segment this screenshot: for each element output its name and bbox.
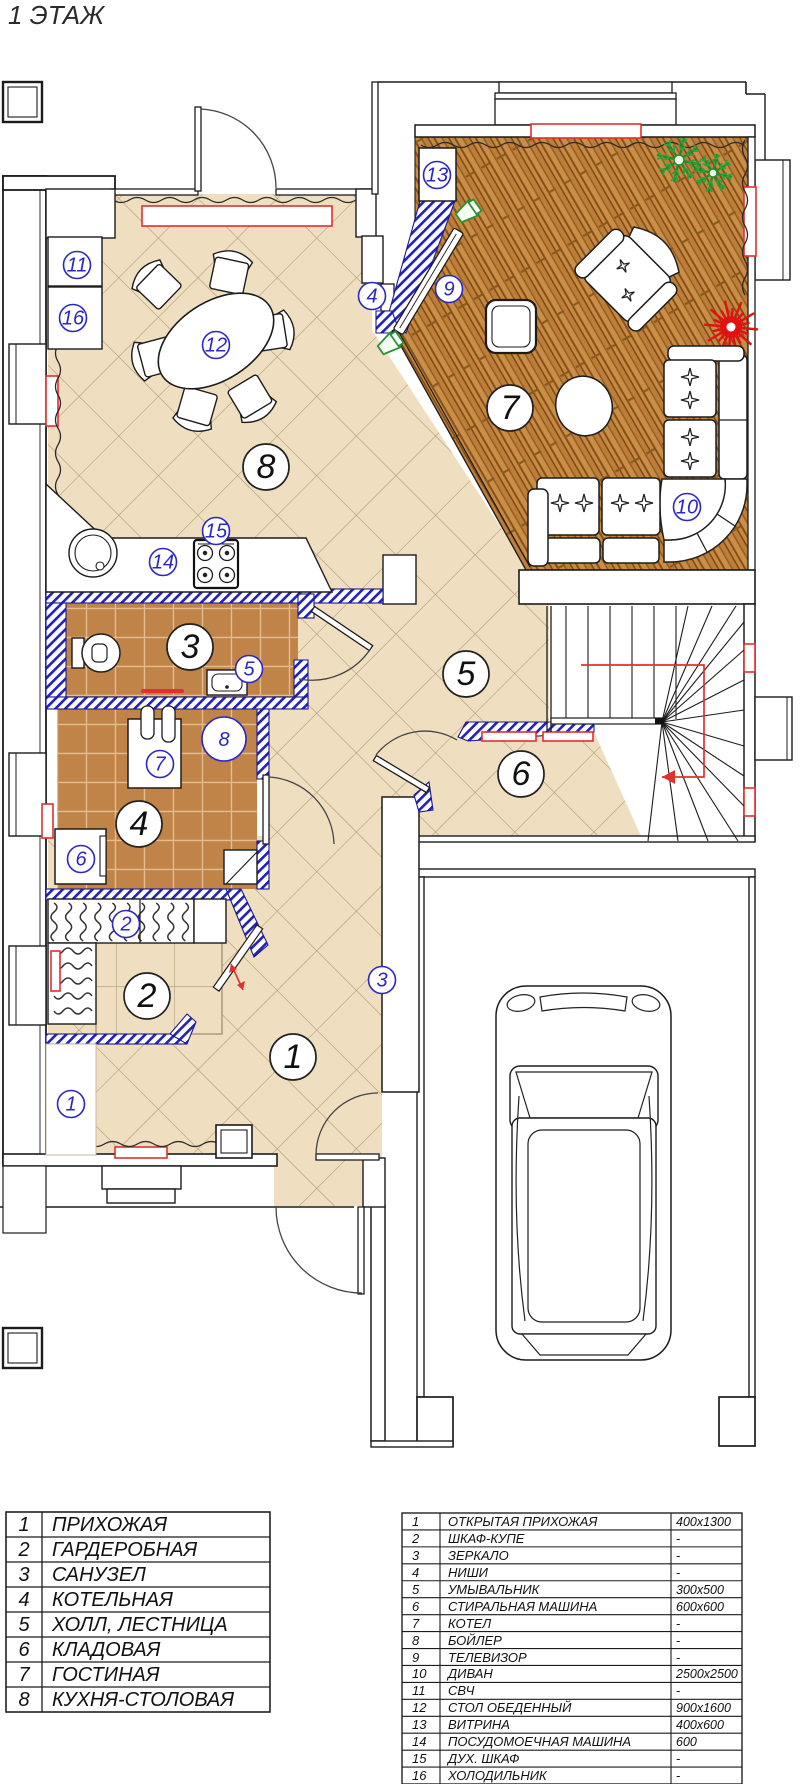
svg-text:6: 6 xyxy=(75,849,87,871)
svg-text:-: - xyxy=(676,1634,680,1648)
svg-text:5: 5 xyxy=(243,659,255,681)
svg-text:ПОСУДОМОЕЧНАЯ МАШИНА: ПОСУДОМОЕЧНАЯ МАШИНА xyxy=(448,1734,631,1749)
svg-text:ДУХ. ШКАФ: ДУХ. ШКАФ xyxy=(446,1751,519,1766)
svg-text:4: 4 xyxy=(18,1589,29,1611)
svg-text:3: 3 xyxy=(181,628,200,666)
svg-text:5: 5 xyxy=(457,655,476,693)
svg-text:ШКАФ-КУПЕ: ШКАФ-КУПЕ xyxy=(448,1531,525,1546)
svg-text:16: 16 xyxy=(412,1768,427,1783)
svg-text:-: - xyxy=(676,1566,680,1580)
svg-text:4: 4 xyxy=(130,805,149,843)
svg-text:2: 2 xyxy=(411,1531,420,1546)
svg-text:СТИРАЛЬНАЯ МАШИНА: СТИРАЛЬНАЯ МАШИНА xyxy=(448,1599,597,1614)
svg-text:-: - xyxy=(676,1617,680,1631)
svg-text:5: 5 xyxy=(412,1582,420,1597)
svg-text:1: 1 xyxy=(284,1038,303,1076)
svg-text:ЗЕРКАЛО: ЗЕРКАЛО xyxy=(448,1548,509,1563)
svg-text:ДИВАН: ДИВАН xyxy=(446,1666,493,1681)
svg-text:4: 4 xyxy=(412,1565,419,1580)
svg-text:1: 1 xyxy=(18,1514,29,1536)
svg-text:2: 2 xyxy=(17,1539,29,1561)
svg-text:9: 9 xyxy=(412,1650,419,1665)
svg-text:ОТКРЫТАЯ ПРИХОЖАЯ: ОТКРЫТАЯ ПРИХОЖАЯ xyxy=(448,1514,597,1529)
svg-text:ГАРДЕРОБНАЯ: ГАРДЕРОБНАЯ xyxy=(52,1539,198,1561)
svg-text:600: 600 xyxy=(676,1735,697,1749)
svg-text:-: - xyxy=(676,1769,680,1783)
svg-text:8: 8 xyxy=(18,1689,29,1711)
svg-text:БОЙЛЕР: БОЙЛЕР xyxy=(448,1632,502,1648)
svg-text:ХОЛОДИЛЬНИК: ХОЛОДИЛЬНИК xyxy=(447,1768,548,1783)
svg-text:300x500: 300x500 xyxy=(676,1583,724,1597)
svg-text:5: 5 xyxy=(18,1614,30,1636)
svg-text:3: 3 xyxy=(412,1548,420,1563)
svg-text:-: - xyxy=(676,1532,680,1546)
svg-text:-: - xyxy=(676,1752,680,1766)
svg-text:9: 9 xyxy=(443,279,454,301)
svg-text:НИШИ: НИШИ xyxy=(448,1565,489,1580)
svg-text:600x600: 600x600 xyxy=(676,1600,724,1614)
svg-text:1 ЭТАЖ: 1 ЭТАЖ xyxy=(8,0,106,30)
svg-text:2: 2 xyxy=(119,914,131,936)
svg-text:10: 10 xyxy=(676,497,698,519)
svg-text:3: 3 xyxy=(376,970,387,992)
svg-text:УМЫВАЛЬНИК: УМЫВАЛЬНИК xyxy=(447,1582,541,1597)
svg-text:16: 16 xyxy=(62,308,85,330)
svg-text:12: 12 xyxy=(412,1700,427,1715)
svg-text:-: - xyxy=(676,1651,680,1665)
svg-text:КОТЕЛ: КОТЕЛ xyxy=(448,1616,491,1631)
svg-text:6: 6 xyxy=(18,1639,30,1661)
svg-text:13: 13 xyxy=(426,165,448,187)
svg-text:4: 4 xyxy=(366,286,377,308)
svg-text:СТОЛ ОБЕДЕННЫЙ: СТОЛ ОБЕДЕННЫЙ xyxy=(448,1699,572,1715)
svg-text:10: 10 xyxy=(412,1666,427,1681)
svg-text:ХОЛЛ, ЛЕСТНИЦА: ХОЛЛ, ЛЕСТНИЦА xyxy=(51,1614,228,1636)
svg-text:11: 11 xyxy=(67,255,88,277)
svg-text:3: 3 xyxy=(18,1564,29,1586)
svg-text:14: 14 xyxy=(152,552,174,574)
svg-text:8: 8 xyxy=(257,448,276,486)
svg-text:ТЕЛЕВИЗОР: ТЕЛЕВИЗОР xyxy=(448,1650,527,1665)
svg-text:400x1300: 400x1300 xyxy=(676,1515,731,1529)
svg-text:14: 14 xyxy=(412,1734,426,1749)
svg-text:400x600: 400x600 xyxy=(676,1718,724,1732)
svg-text:КЛАДОВАЯ: КЛАДОВАЯ xyxy=(52,1639,161,1661)
svg-text:ВИТРИНА: ВИТРИНА xyxy=(448,1717,510,1732)
svg-text:12: 12 xyxy=(205,335,227,357)
svg-text:15: 15 xyxy=(412,1751,427,1766)
svg-text:2500x2500: 2500x2500 xyxy=(675,1667,738,1681)
svg-text:7: 7 xyxy=(412,1616,420,1631)
svg-text:ГОСТИНАЯ: ГОСТИНАЯ xyxy=(52,1664,160,1686)
svg-text:-: - xyxy=(676,1549,680,1563)
svg-text:7: 7 xyxy=(18,1664,30,1686)
svg-text:13: 13 xyxy=(412,1717,427,1732)
svg-text:2: 2 xyxy=(137,977,157,1015)
svg-text:-: - xyxy=(676,1684,680,1698)
svg-text:11: 11 xyxy=(412,1683,426,1698)
svg-text:1: 1 xyxy=(412,1514,419,1529)
svg-text:6: 6 xyxy=(412,1599,420,1614)
svg-text:8: 8 xyxy=(218,729,229,751)
svg-text:900x1600: 900x1600 xyxy=(676,1701,731,1715)
svg-text:КУХНЯ-СТОЛОВАЯ: КУХНЯ-СТОЛОВАЯ xyxy=(52,1689,234,1711)
svg-text:8: 8 xyxy=(412,1633,420,1648)
svg-text:КОТЕЛЬНАЯ: КОТЕЛЬНАЯ xyxy=(52,1589,173,1611)
svg-text:15: 15 xyxy=(205,521,228,543)
svg-text:ПРИХОЖАЯ: ПРИХОЖАЯ xyxy=(52,1514,167,1536)
svg-text:7: 7 xyxy=(501,389,521,427)
svg-text:6: 6 xyxy=(512,755,531,793)
svg-text:1: 1 xyxy=(65,1094,76,1116)
svg-text:7: 7 xyxy=(154,754,166,776)
svg-text:САНУЗЕЛ: САНУЗЕЛ xyxy=(52,1564,146,1586)
svg-text:СВЧ: СВЧ xyxy=(448,1683,475,1698)
